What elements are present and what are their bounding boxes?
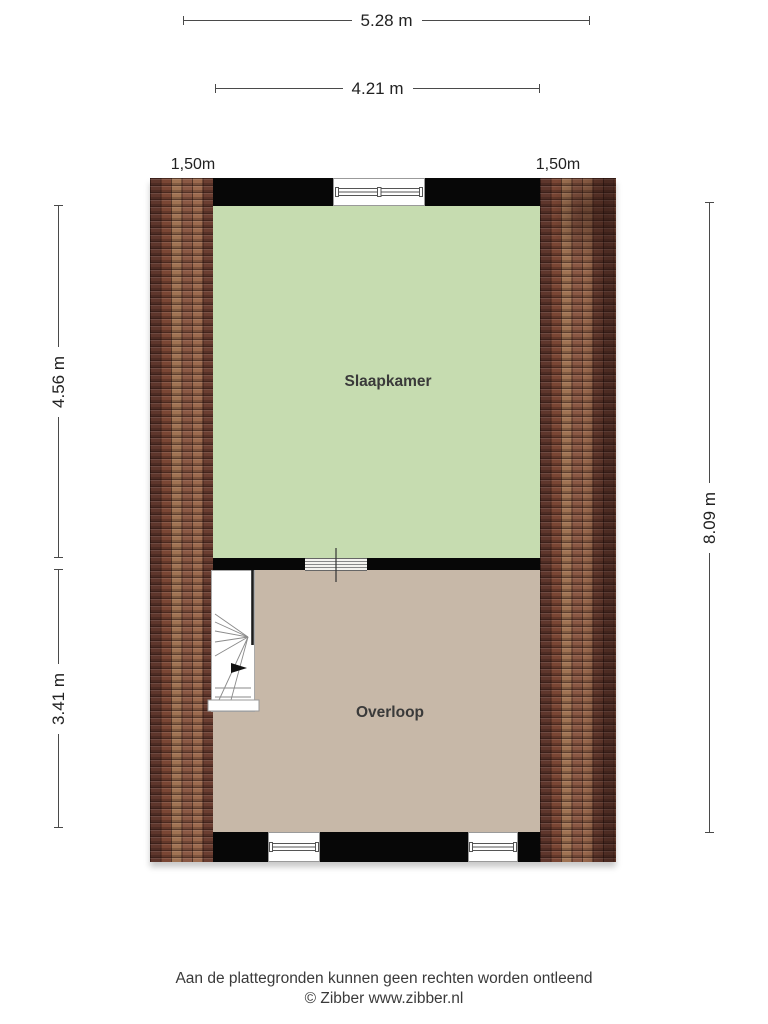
opening-middle-wall (305, 548, 367, 582)
room-overloop (213, 570, 540, 832)
dimension-left-lower: 3.41 m (49, 569, 67, 828)
room-label-slaapkamer: Slaapkamer (344, 373, 431, 391)
dimension-line (58, 417, 59, 558)
footer-copyright: © Zibber www.zibber.nl (0, 990, 768, 1008)
dimension-line (58, 206, 59, 347)
dimension-tick (54, 557, 63, 558)
dimension-line (184, 20, 352, 21)
dimension-line (58, 734, 59, 828)
dimension-top-outer-label: 5.28 m (352, 12, 422, 29)
window-bottom-right (468, 832, 518, 862)
dimension-top-inner-label: 4.21 m (343, 80, 413, 97)
window-top (333, 178, 425, 206)
dimension-tick (589, 16, 590, 25)
window-bottom-left (268, 832, 320, 862)
dimension-tick (539, 84, 540, 93)
roof-tiles-left (150, 178, 213, 862)
dimension-top-inner: 4.21 m (215, 79, 540, 97)
room-label-overloop: Overloop (356, 704, 424, 722)
roof-tiles-right (540, 178, 616, 862)
dimension-line (709, 203, 710, 483)
dimension-top-outer: 5.28 m (183, 11, 590, 29)
dimension-right-full-label: 8.09 m (701, 483, 718, 553)
wall-middle (213, 558, 540, 570)
stairs (211, 570, 257, 712)
dimension-line (413, 88, 540, 89)
dimension-tick (705, 832, 714, 833)
footer-disclaimer: Aan de plattegronden kunnen geen rechten… (0, 970, 768, 988)
floorplan-canvas: Slaapkamer Overloop (150, 178, 616, 862)
dimension-line (422, 20, 590, 21)
knee-height-label-left: 1,50m (165, 156, 221, 174)
dimension-left-lower-label: 3.41 m (50, 664, 67, 734)
dimension-tick (54, 827, 63, 828)
dimension-line (216, 88, 343, 89)
dimension-line (709, 553, 710, 833)
knee-height-label-right: 1,50m (530, 156, 586, 174)
dimension-left-upper-label: 4.56 m (50, 347, 67, 417)
stair-landing (208, 700, 259, 711)
dimension-left-upper: 4.56 m (49, 205, 67, 558)
dimension-line (58, 570, 59, 664)
dimension-right-full: 8.09 m (700, 202, 718, 833)
